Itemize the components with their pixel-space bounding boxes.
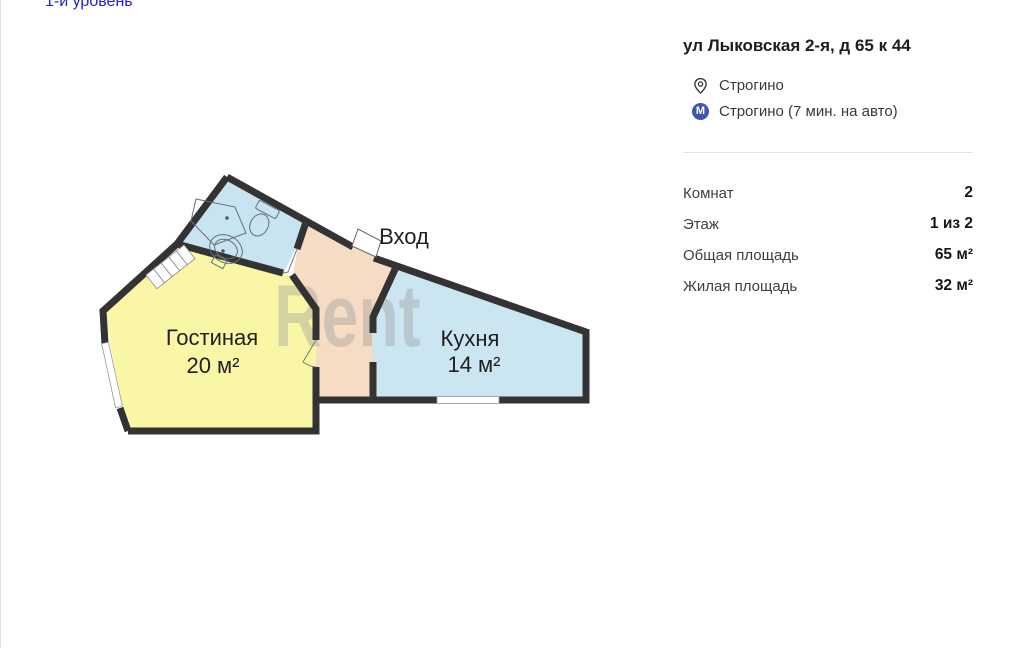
- district-label: Строгино: [719, 77, 784, 94]
- detail-value: 65 м²: [935, 246, 973, 264]
- room-living-label: Гостиная: [166, 325, 258, 350]
- detail-row-total-area: Общая площадь 65 м²: [683, 246, 973, 264]
- room-kitchen-area-label: 14 м²: [447, 352, 500, 377]
- detail-row-rooms: Комнат 2: [683, 184, 973, 202]
- metro-label: Строгино (7 мин. на авто): [719, 103, 898, 120]
- panel-divider: [683, 152, 973, 153]
- detail-row-living-area: Жилая площадь 32 м²: [683, 277, 973, 295]
- detail-value: 32 м²: [935, 277, 973, 295]
- floorplan-image: Rent: [0, 0, 1024, 648]
- location-pin-icon: [692, 77, 709, 94]
- detail-row-floor: Этаж 1 из 2: [683, 215, 973, 233]
- detail-label: Этаж: [683, 216, 719, 233]
- room-living-area-label: 20 м²: [186, 353, 239, 378]
- detail-value: 2: [964, 184, 973, 202]
- detail-label: Комнат: [683, 185, 734, 202]
- district-row: Строгино: [692, 76, 784, 94]
- detail-label: Общая площадь: [683, 247, 799, 264]
- detail-label: Жилая площадь: [683, 278, 797, 295]
- metro-row: М Строгино (7 мин. на авто): [692, 102, 898, 120]
- detail-value: 1 из 2: [930, 215, 973, 233]
- metro-icon: М: [692, 103, 709, 120]
- entrance-label: Вход: [379, 224, 429, 249]
- listing-address-title: ул Лыковская 2-я, д 65 к 44: [683, 36, 973, 56]
- room-kitchen-label: Кухня: [441, 326, 500, 351]
- window-kitchen: [437, 397, 499, 404]
